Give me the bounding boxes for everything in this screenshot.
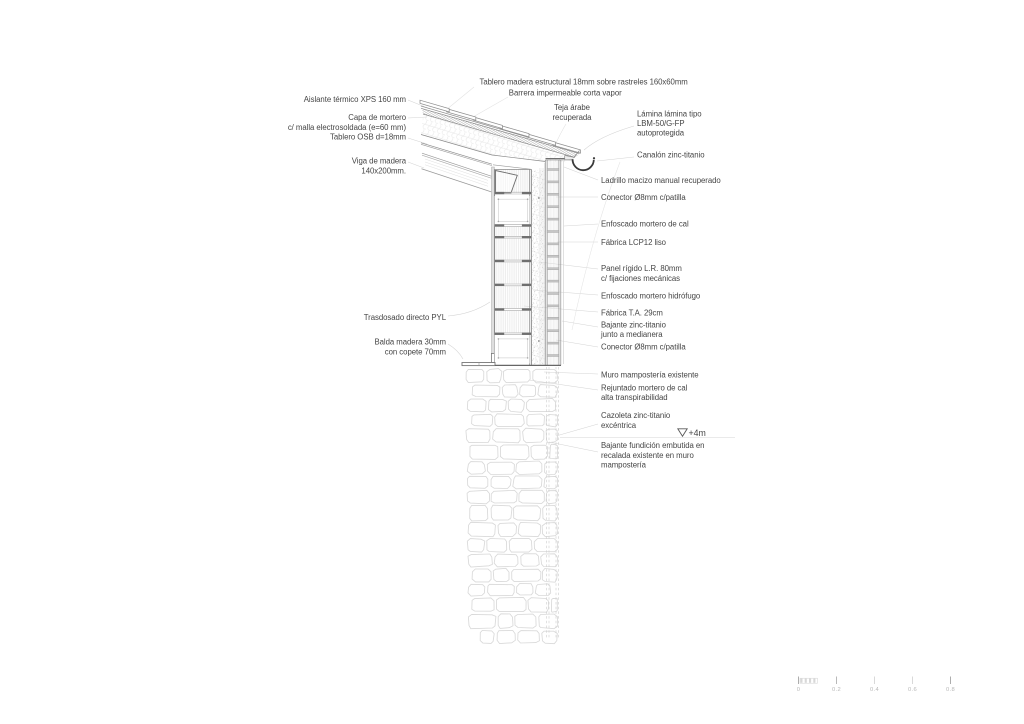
svg-text:Conector Ø8mm c/patilla: Conector Ø8mm c/patilla [601, 193, 686, 202]
svg-text:Fábrica LCP12 liso: Fábrica LCP12 liso [601, 238, 667, 247]
svg-text:Aislante térmico XPS 160 mm: Aislante térmico XPS 160 mm [304, 95, 406, 104]
svg-text:0.4: 0.4 [870, 687, 879, 693]
svg-text:Canalón zinc-titanio: Canalón zinc-titanio [637, 151, 705, 160]
svg-text:Panel rígido L.R. 80mm: Panel rígido L.R. 80mm [601, 264, 682, 273]
svg-text:0.2: 0.2 [832, 687, 841, 693]
svg-text:0.6: 0.6 [908, 687, 917, 693]
svg-text:junto a medianera: junto a medianera [600, 330, 663, 339]
svg-text:LBM-50/G-FP: LBM-50/G-FP [637, 119, 685, 128]
svg-text:c/ fijaciones mecánicas: c/ fijaciones mecánicas [601, 274, 680, 283]
svg-text:autoprotegida: autoprotegida [637, 129, 685, 138]
svg-text:+4m: +4m [689, 428, 706, 438]
svg-text:Trasdosado directo PYL: Trasdosado directo PYL [364, 313, 447, 322]
svg-text:Enfoscado mortero hidrófugo: Enfoscado mortero hidrófugo [601, 292, 701, 301]
svg-text:Ladrillo macizo manual recuper: Ladrillo macizo manual recuperado [601, 176, 721, 185]
svg-text:0.8: 0.8 [946, 687, 955, 693]
svg-text:con copete 70mm: con copete 70mm [385, 347, 446, 356]
svg-text:Bajante zinc-titanio: Bajante zinc-titanio [601, 321, 667, 330]
svg-text:Barrera impermeable corta vapo: Barrera impermeable corta vapor [509, 89, 622, 98]
svg-text:Tablero OSB d=18mm: Tablero OSB d=18mm [330, 133, 406, 142]
svg-text:recalada existente en muro: recalada existente en muro [601, 451, 694, 460]
svg-text:Teja árabe: Teja árabe [554, 103, 590, 112]
svg-text:0: 0 [797, 687, 801, 693]
svg-text:Cazoleta zinc-titanio: Cazoleta zinc-titanio [601, 411, 671, 420]
svg-text:Lámina lámina tipo: Lámina lámina tipo [637, 109, 702, 118]
svg-text:Rejuntado mortero de cal: Rejuntado mortero de cal [601, 384, 688, 393]
svg-text:140x200mm.: 140x200mm. [361, 166, 406, 175]
svg-text:Fábrica T.A. 29cm: Fábrica T.A. 29cm [601, 309, 663, 318]
svg-text:c/ malla electrosoldada (e=60: c/ malla electrosoldada (e=60 mm) [288, 123, 407, 132]
svg-text:recuperada: recuperada [553, 113, 593, 122]
svg-text:Viga de madera: Viga de madera [352, 157, 407, 166]
svg-text:Bajante fundición embutida en: Bajante fundición embutida en [601, 441, 704, 450]
svg-text:mampostería: mampostería [601, 460, 647, 469]
svg-text:excéntrica: excéntrica [601, 421, 637, 430]
svg-text:Conector Ø8mm c/patilla: Conector Ø8mm c/patilla [601, 343, 686, 352]
svg-text:alta transpirabilidad: alta transpirabilidad [601, 393, 668, 402]
svg-text:Muro mampostería existente: Muro mampostería existente [601, 370, 699, 379]
svg-text:Enfoscado mortero de cal: Enfoscado mortero de cal [601, 220, 689, 229]
svg-text:Balda madera 30mm: Balda madera 30mm [374, 338, 446, 347]
svg-text:Tablero madera estructural 18m: Tablero madera estructural 18mm sobre ra… [480, 78, 688, 87]
svg-text:Capa de mortero: Capa de mortero [348, 113, 406, 122]
